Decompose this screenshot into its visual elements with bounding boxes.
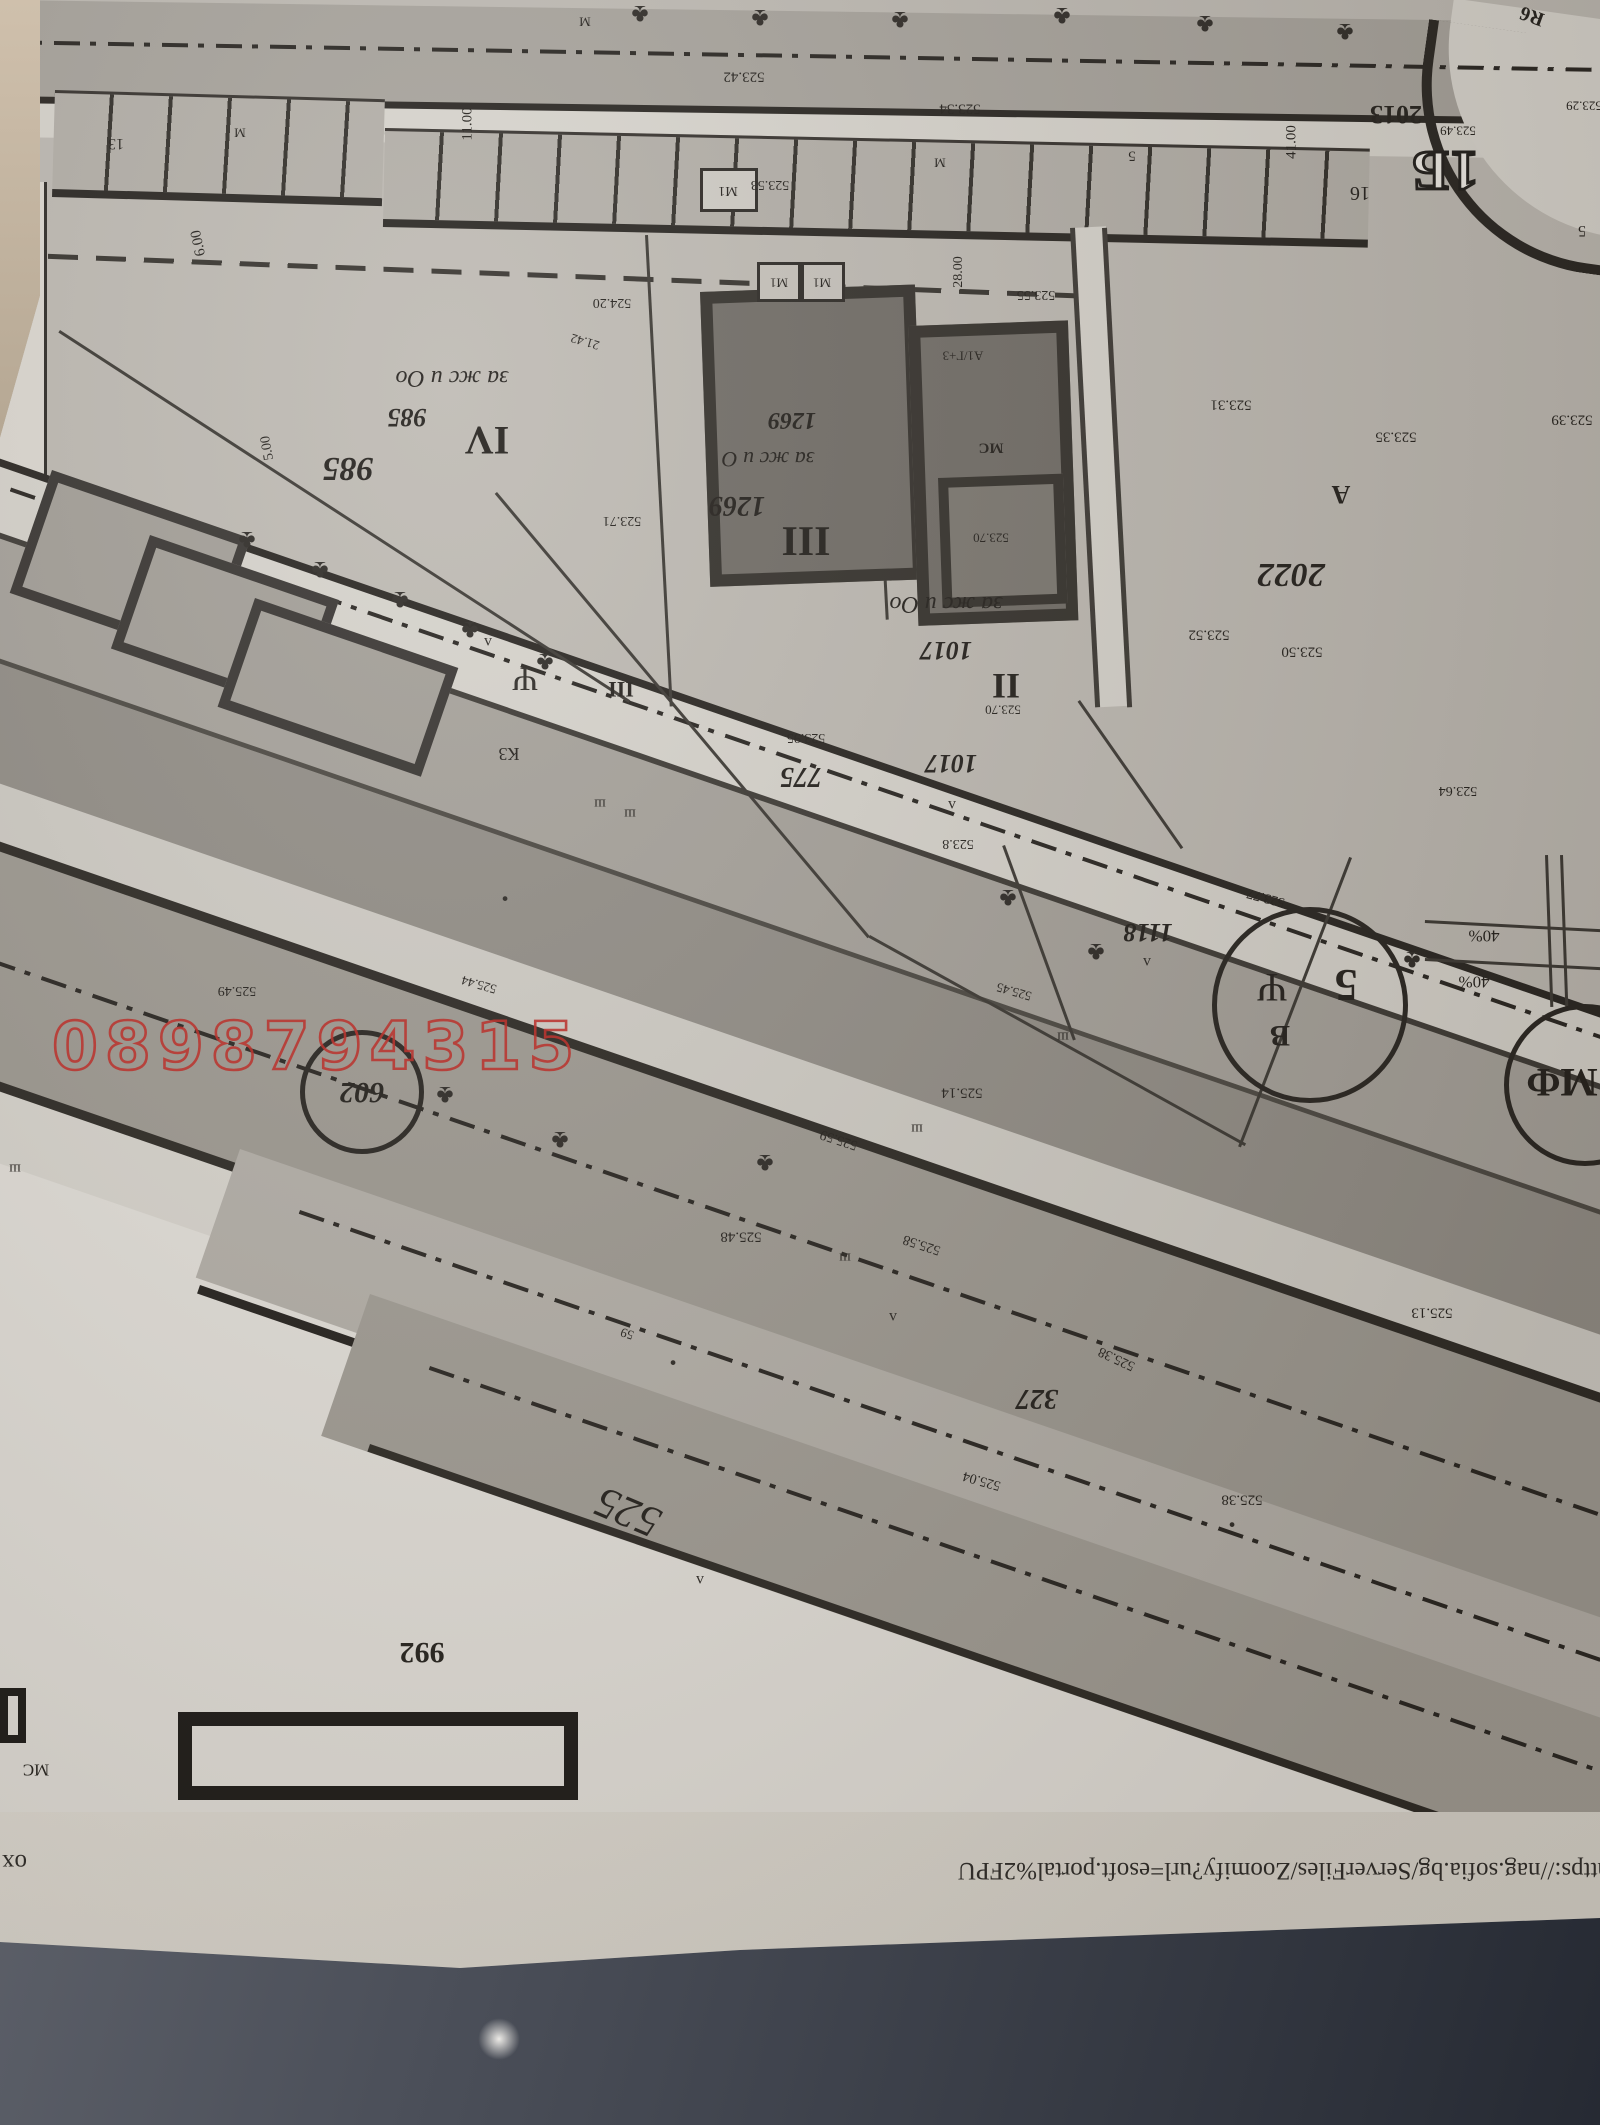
map-label: 11.00 <box>461 107 476 140</box>
parcel-boundary-line <box>1425 920 1600 932</box>
building-outline-992-block <box>178 1712 578 1800</box>
map-label: 525.48 <box>720 1229 761 1244</box>
map-label: 523.31 <box>1210 397 1251 412</box>
tree-icon: ♣ <box>436 1082 453 1108</box>
map-label: А <box>1332 481 1351 507</box>
map-label: 992 <box>400 1637 445 1667</box>
map-label: 523.8 <box>942 836 974 850</box>
map-label: 40% <box>1468 928 1499 945</box>
parcel-boundary-line <box>645 235 673 707</box>
map-label: М1 <box>813 277 831 290</box>
map-label: МС <box>979 440 1004 455</box>
tree-icon: ♣ <box>1403 947 1420 973</box>
tree-icon: ♣ <box>536 649 553 675</box>
parking-stall-row <box>52 90 385 206</box>
tree-icon: ♣ <box>1196 11 1213 37</box>
tree-icon: ♣ <box>756 1150 773 1176</box>
parcel-boundary-line <box>1545 855 1553 1007</box>
map-label: 523.71 <box>603 513 642 527</box>
service-road-strip <box>1072 226 1131 707</box>
map-label: 40% <box>1458 974 1489 991</box>
fir-icon: Ψ <box>512 661 537 695</box>
map-label: 16 <box>1350 183 1370 203</box>
map-label: 985 <box>323 451 374 485</box>
map-label: 1017 <box>920 637 972 663</box>
map-label: 1Б <box>1409 142 1478 198</box>
cadastral-map-area: 523.42523.34523.5313МММ52013523.49523.29… <box>0 0 1600 1812</box>
map-label: 523.53 <box>751 177 790 191</box>
caret-icon: ᴧ <box>948 797 956 813</box>
map-label: М <box>579 16 591 29</box>
map-label: 2022 <box>1257 557 1325 591</box>
tree-icon: ♣ <box>238 527 255 553</box>
map-label: 525.38 <box>1221 1492 1262 1507</box>
map-label: 523.55 <box>1017 287 1056 301</box>
photo-of-printed-cadastral-map: 523.42523.34523.5313МММ52013523.49523.29… <box>0 0 1600 2125</box>
map-label: 1118 <box>1123 919 1172 945</box>
caret-icon: ᴧ <box>484 634 492 650</box>
map-label: 6.00 <box>189 229 209 258</box>
circle-label: 5 <box>1335 962 1358 1008</box>
map-label: 523.35 <box>1375 429 1416 444</box>
map-label: 523.42 <box>723 69 764 84</box>
map-label: III <box>608 678 634 700</box>
tree-icon: ♣ <box>891 7 908 33</box>
light-reflection <box>478 2018 520 2060</box>
map-label: 1269 <box>709 491 765 519</box>
map-label: 41.00 <box>1285 125 1300 159</box>
map-label: А1/Г+3 <box>943 350 984 363</box>
map-label: 13 <box>108 135 124 151</box>
map-label: за жс и Оо <box>889 592 1002 616</box>
circle-label: В <box>1270 1020 1290 1050</box>
footer-corner-fragment: ox <box>2 1848 27 1876</box>
map-label: 523.39 <box>1551 412 1592 427</box>
map-label: М1 <box>718 183 737 197</box>
caret-icon: ᴧ <box>889 1309 897 1325</box>
tree-icon: ♣ <box>1087 939 1104 965</box>
manhole-icon: ш <box>911 1121 923 1136</box>
parcel-boundary-line <box>1560 855 1568 1007</box>
map-label: 985 <box>388 404 427 430</box>
map-label: 523.70 <box>985 704 1021 717</box>
parking-stall-row <box>383 128 1370 248</box>
lamp-icon: ● <box>1229 1519 1236 1530</box>
tree-icon: ♣ <box>1053 3 1070 29</box>
manhole-icon: ш <box>594 796 606 811</box>
map-label: 2013 <box>1370 101 1422 127</box>
tree-icon: ♣ <box>999 885 1016 911</box>
manhole-icon: ш <box>839 1250 851 1265</box>
map-label: 523.50 <box>1281 644 1322 659</box>
tree-icon: ♣ <box>1336 19 1353 45</box>
map-label: 5 <box>1578 222 1586 238</box>
map-label: 523.95 <box>787 730 826 744</box>
circle-label: Ψ <box>1257 967 1287 1007</box>
map-label: за жс и О <box>722 448 815 470</box>
map-label: 525.49 <box>218 983 257 997</box>
watermark-phone-number: 0898794315 <box>52 1008 581 1085</box>
manhole-icon: ш <box>9 1161 21 1176</box>
map-label: 523.34 <box>939 101 980 116</box>
map-label: 28.00 <box>952 256 966 288</box>
green-area-5B-circle <box>1212 907 1408 1103</box>
map-label: II <box>992 668 1020 704</box>
tree-icon: ♣ <box>391 587 408 613</box>
map-label: 525.14 <box>941 1085 982 1100</box>
map-label: 1017 <box>925 750 977 776</box>
lamp-icon: ● <box>670 1357 677 1368</box>
map-label: 523.70 <box>973 532 1009 545</box>
map-label: за жс и Оо <box>395 366 508 390</box>
map-label: 1269 <box>768 408 816 432</box>
caret-icon: ᴧ <box>696 1572 704 1588</box>
tree-icon: ♣ <box>461 617 478 643</box>
map-label: МС <box>23 1762 49 1779</box>
manhole-icon: ш <box>624 806 636 821</box>
map-label: М <box>934 157 946 170</box>
map-label: III <box>781 519 830 561</box>
building-outline-edge <box>0 1688 26 1743</box>
map-label: 5 <box>1128 148 1136 163</box>
parcel-front-dashed-line <box>0 252 1099 299</box>
map-label: 523.64 <box>1439 783 1478 797</box>
tree-icon: ♣ <box>311 557 328 583</box>
map-label: 523.29 <box>1566 100 1600 113</box>
map-label: 775 <box>780 762 822 790</box>
map-label: 525.13 <box>1411 1305 1452 1320</box>
map-label: М <box>234 127 246 140</box>
map-label: 524.20 <box>593 295 632 309</box>
map-label: 327 <box>1016 1384 1058 1412</box>
map-label: М1 <box>770 277 788 290</box>
map-label: 5.00 <box>259 435 277 462</box>
tree-icon: ♣ <box>631 1 648 27</box>
map-label: IV <box>465 420 509 460</box>
parcel-boundary-line <box>1078 700 1184 849</box>
tree-icon: ♣ <box>751 5 768 31</box>
map-label: 21.42 <box>569 332 601 353</box>
lamp-icon: ● <box>502 893 509 904</box>
map-label: 523.52 <box>1188 627 1229 642</box>
map-label: 523.49 <box>1440 125 1476 138</box>
map-label: К3 <box>498 745 519 763</box>
caret-icon: ᴧ <box>1143 954 1151 970</box>
footer-url: https://nag.sofia.bg/ServerFiles/Zoomify… <box>770 1856 1600 1884</box>
manhole-icon: ш <box>1057 1029 1069 1044</box>
tree-icon: ♣ <box>551 1127 568 1153</box>
